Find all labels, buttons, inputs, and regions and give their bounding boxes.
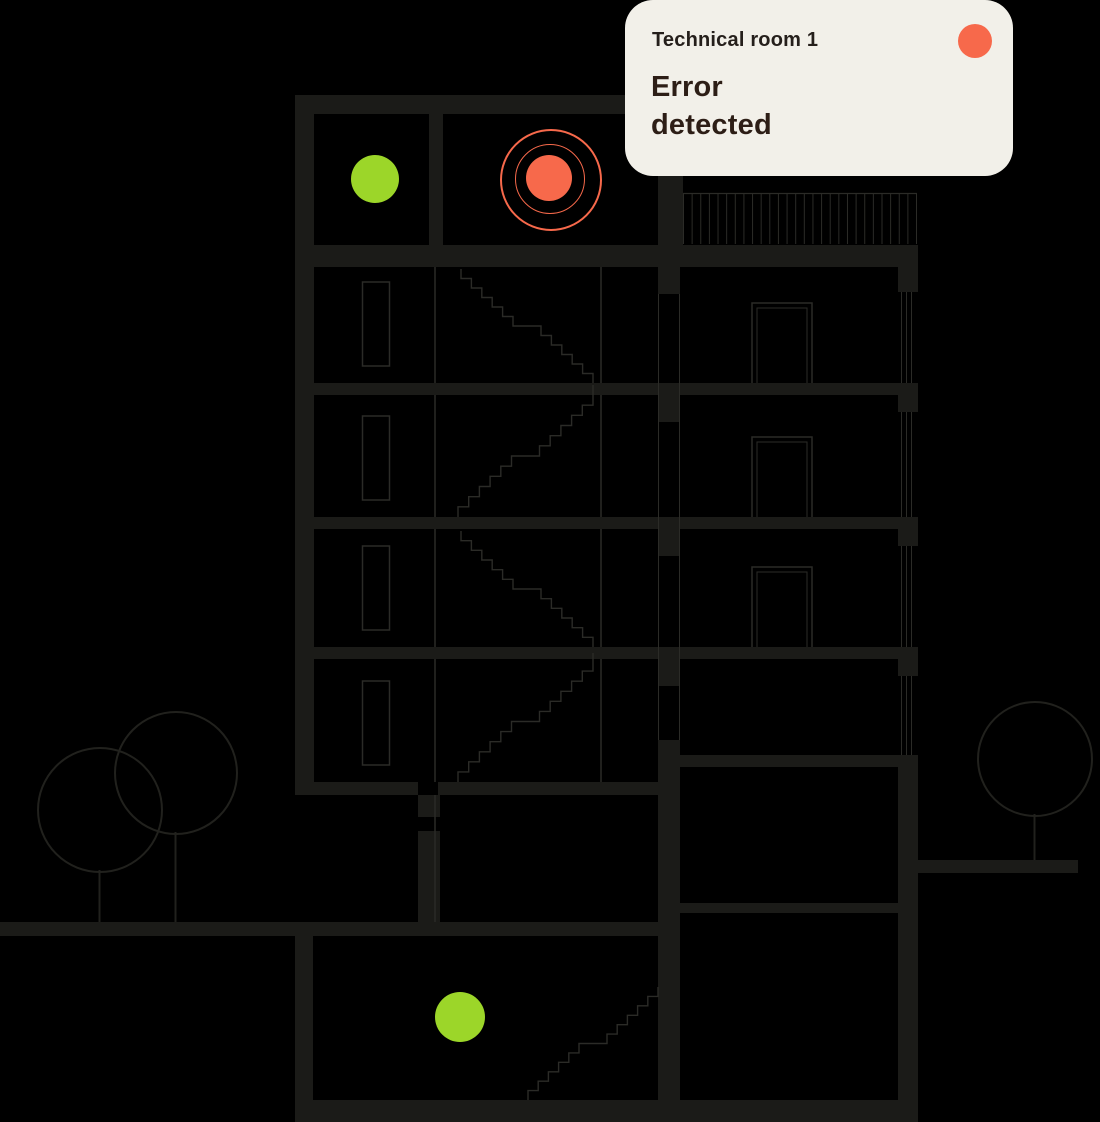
door-frame-outer bbox=[752, 567, 812, 647]
top-floor-divider-wall bbox=[429, 114, 443, 245]
right-section-left-wall bbox=[658, 740, 680, 1122]
door-frame-outer bbox=[752, 437, 812, 517]
main-roof-slab bbox=[295, 245, 918, 267]
floor-slab-a bbox=[314, 383, 918, 395]
floor-slab-d-left bbox=[295, 782, 418, 795]
technical-room-1-status-dot[interactable] bbox=[526, 155, 572, 201]
basement-room-status-dot[interactable] bbox=[435, 992, 485, 1042]
right-wing-floor-slab bbox=[658, 755, 918, 767]
ground-floor-column-lower bbox=[418, 831, 440, 922]
stair-flight-basement bbox=[528, 987, 658, 1100]
tooltip-status-message: Error detected bbox=[651, 68, 831, 145]
window-frame bbox=[363, 681, 390, 765]
floor-slab-c bbox=[314, 647, 918, 659]
basement-left-wall bbox=[295, 935, 313, 1122]
ground-line-right bbox=[918, 860, 1078, 873]
door-frame-inner bbox=[757, 308, 807, 383]
shaft-block-top bbox=[658, 267, 680, 294]
window-frame bbox=[363, 282, 390, 366]
shaft-block-a bbox=[658, 383, 680, 422]
floor-slab-b bbox=[314, 517, 918, 529]
facade-block-a bbox=[898, 383, 918, 412]
left-outer-wall bbox=[295, 95, 314, 788]
shaft-block-c bbox=[658, 647, 680, 686]
tree-crown-icon bbox=[38, 748, 162, 872]
stair-flight-floor-d bbox=[458, 653, 593, 782]
right-section-right-wall bbox=[898, 755, 918, 1122]
top-floor-room-status-dot[interactable] bbox=[351, 155, 399, 203]
tree-crown-icon bbox=[978, 702, 1092, 816]
door-frame-outer bbox=[752, 303, 812, 383]
stair-flight-floor-a bbox=[461, 269, 593, 383]
facade-block-b bbox=[898, 517, 918, 546]
window-frame bbox=[363, 416, 390, 500]
tree-crown-icon bbox=[115, 712, 237, 834]
right-section-slab bbox=[658, 903, 918, 913]
stair-flight-floor-c bbox=[461, 531, 593, 647]
window-frame bbox=[363, 546, 390, 630]
tooltip-room-title: Technical room 1 bbox=[652, 29, 818, 52]
facade-block-c bbox=[898, 647, 918, 676]
ground-line-left bbox=[0, 922, 658, 936]
tooltip-error-dot-icon bbox=[958, 24, 992, 58]
floor-slab-d-right bbox=[438, 782, 658, 795]
shaft-block-b bbox=[658, 517, 680, 556]
door-frame-inner bbox=[757, 572, 807, 647]
building-monitoring-scene: Technical room 1 Error detected bbox=[0, 0, 1100, 1122]
facade-block-top bbox=[898, 267, 918, 292]
ground-floor-column-upper bbox=[418, 795, 440, 817]
status-tooltip-card[interactable]: Technical room 1 Error detected bbox=[625, 0, 1013, 176]
door-frame-inner bbox=[757, 442, 807, 517]
stair-flight-floor-b bbox=[458, 385, 593, 517]
foundation-slab bbox=[295, 1100, 918, 1122]
